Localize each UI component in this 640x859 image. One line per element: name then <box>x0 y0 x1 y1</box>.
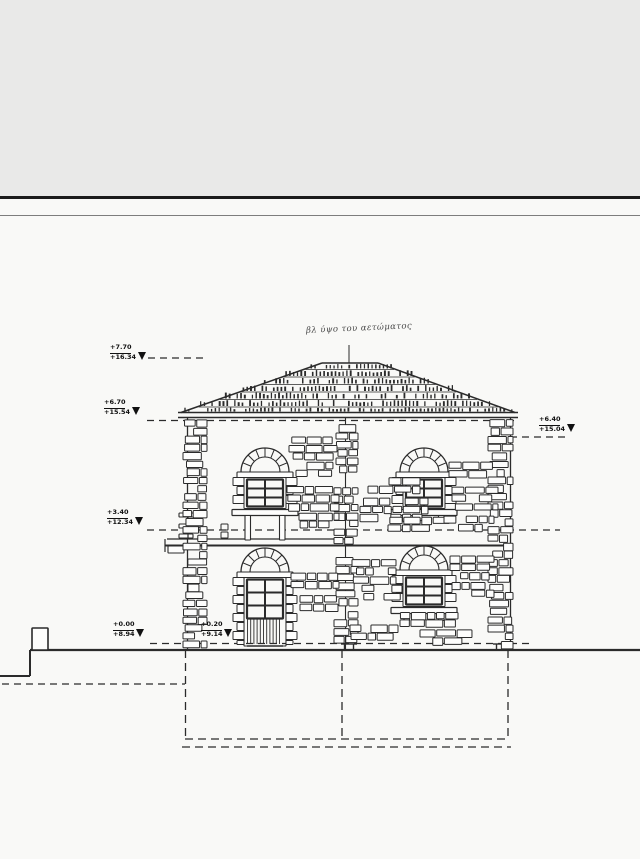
level-triangle-icon <box>136 629 144 637</box>
marker-lower-value: +15.54 <box>104 409 130 417</box>
elevation-marker-ground: +0.00 +8.94 <box>113 621 144 639</box>
marker-lower-value: +9.14 <box>201 631 222 639</box>
elevation-marker-eave-left: +6.70 +15.54 <box>104 399 140 417</box>
elevation-marker-eave-right: +6.40 +15.04 <box>539 416 575 434</box>
level-triangle-icon <box>135 517 143 525</box>
level-triangle-icon <box>224 629 232 637</box>
elevation-marker-mid-floor: +3.40 +12.34 <box>107 509 143 527</box>
level-triangle-icon <box>132 407 140 415</box>
level-triangle-icon <box>138 352 146 360</box>
marker-lower-value: +15.04 <box>539 426 565 434</box>
marker-lower-value: +12.34 <box>107 519 133 527</box>
marker-lower-value: +16.34 <box>110 354 136 362</box>
marker-lower-value: +8.94 <box>113 631 134 639</box>
elevation-marker-ridge: +7.70 +16.34 <box>110 344 146 362</box>
elevation-marker-threshold: +0.20 +9.14 <box>201 621 232 639</box>
level-triangle-icon <box>567 424 575 432</box>
